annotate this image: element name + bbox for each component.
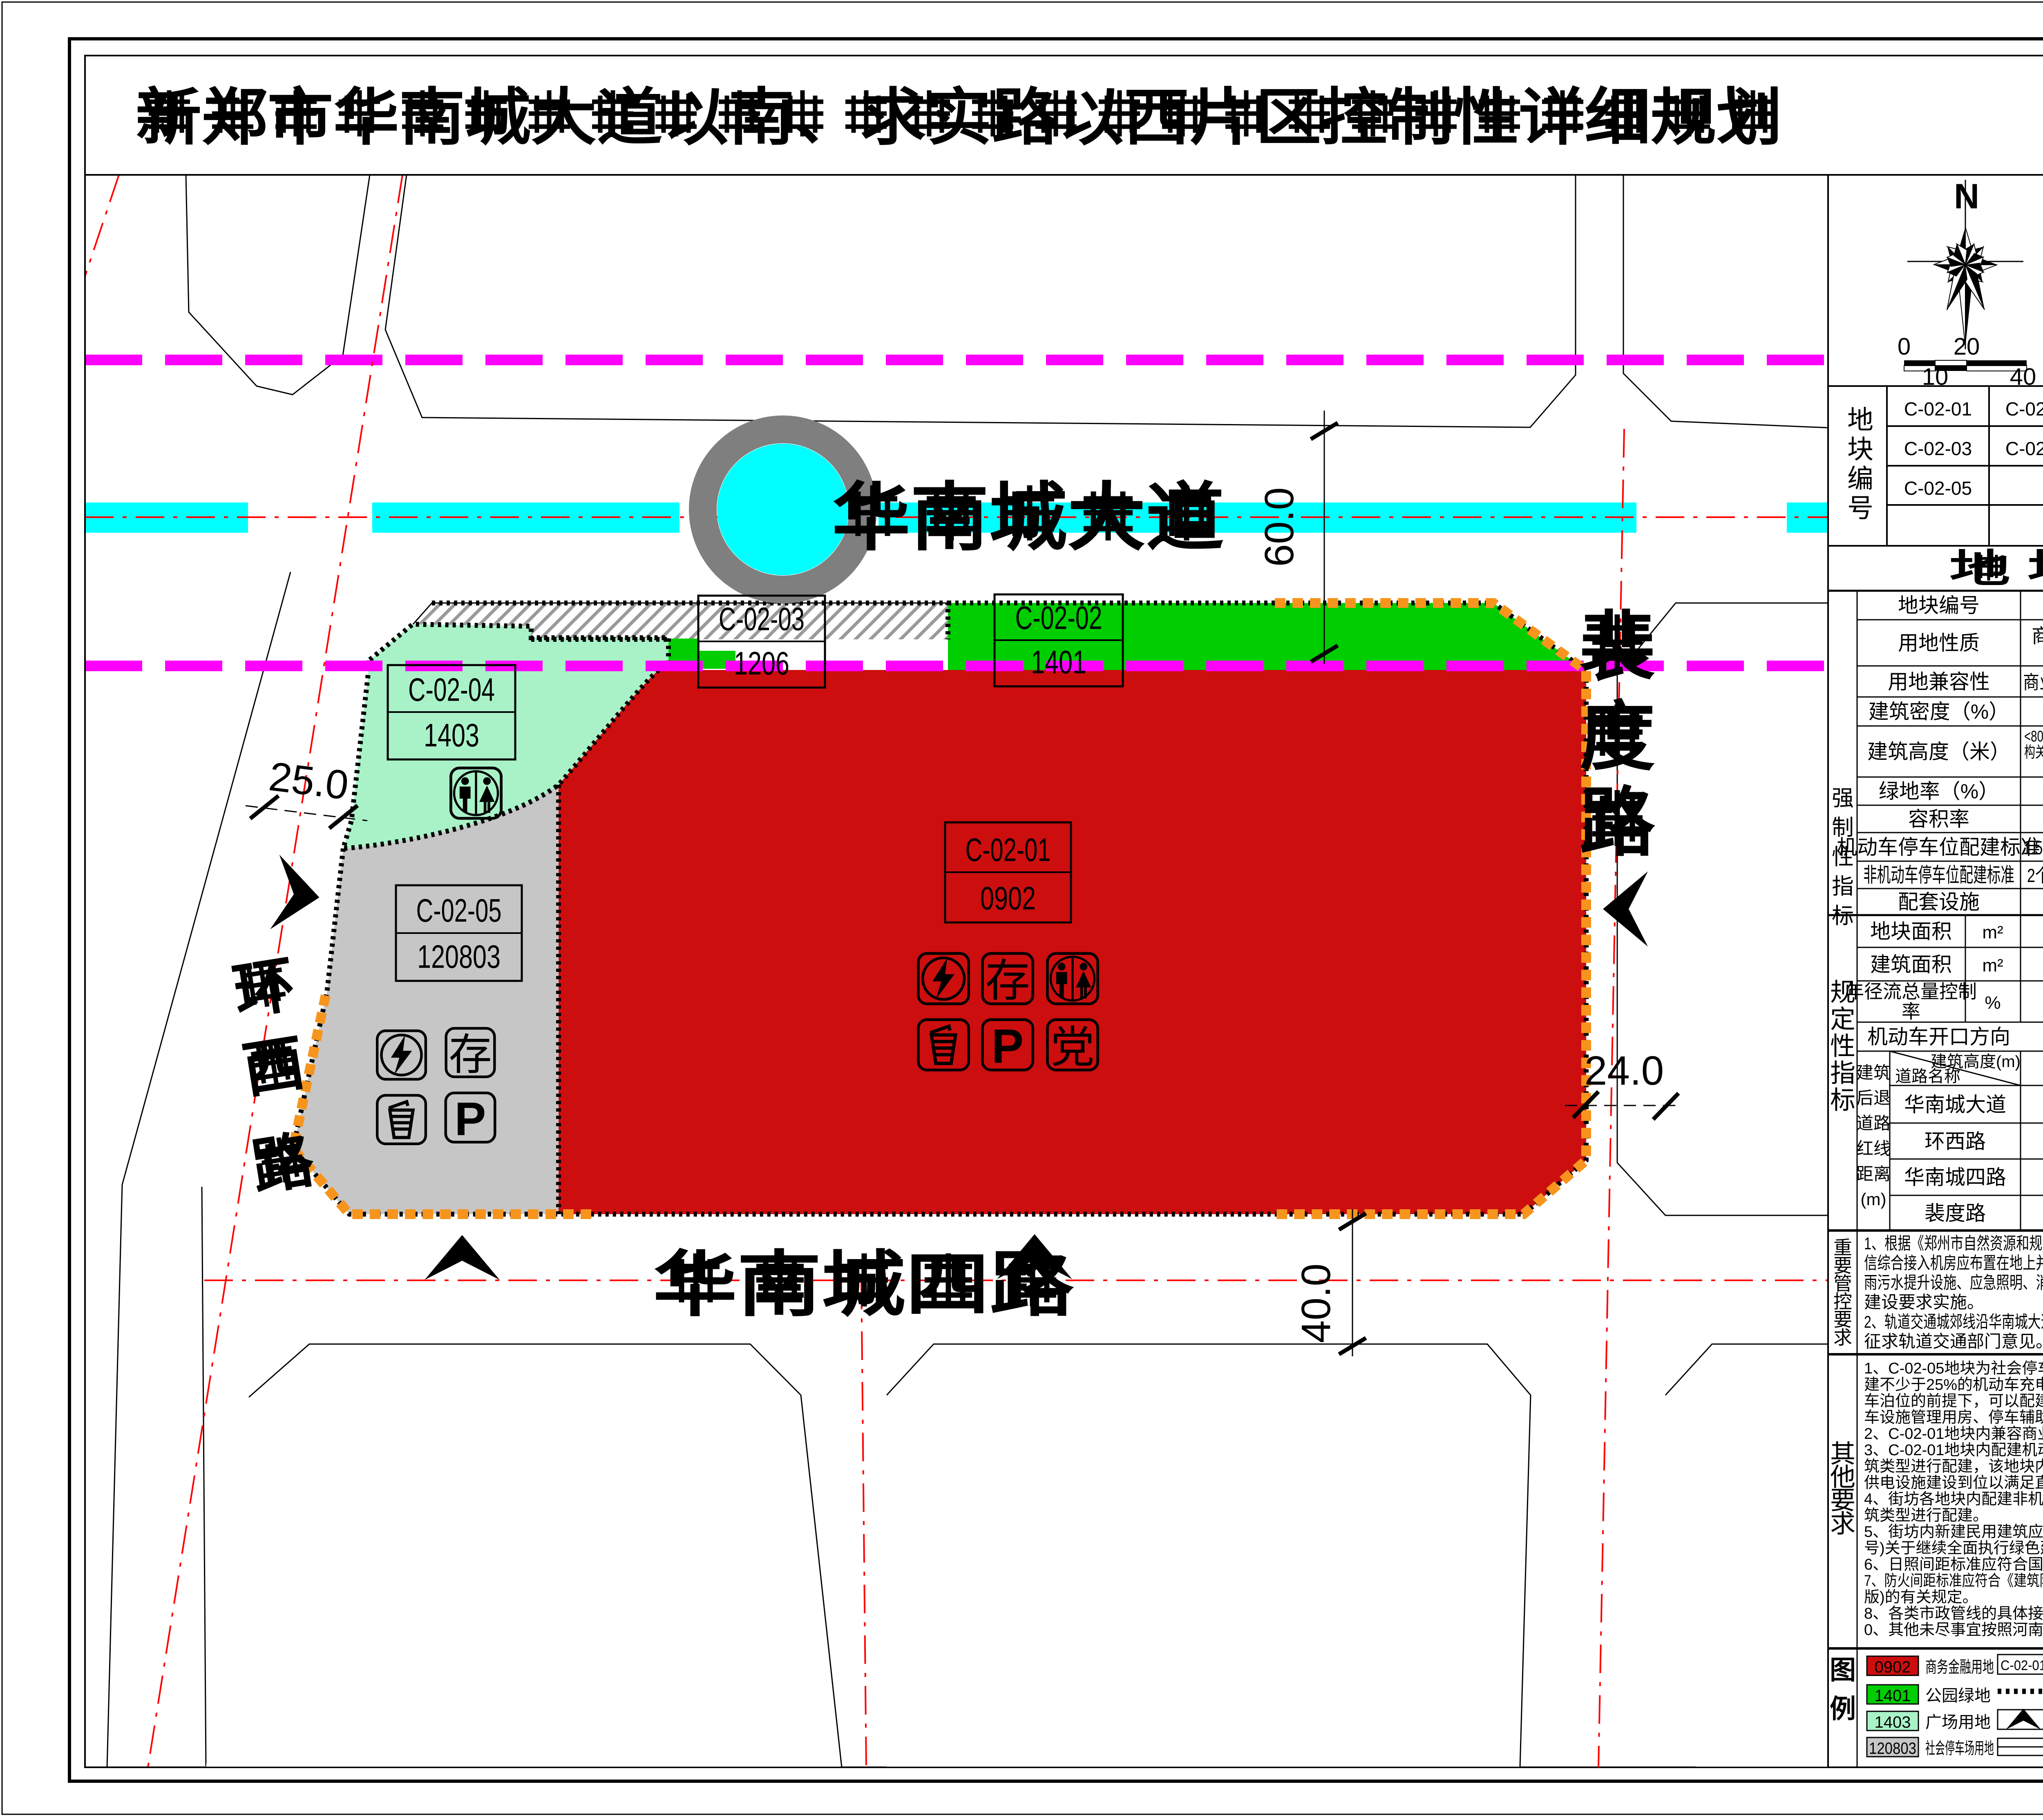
svg-text:车泊位的前提下，可以配建商业设施，其建筑面积不超过停车设施总: 车泊位的前提下，可以配建商业设施，其建筑面积不超过停车设施总建筑面积的20%，附… <box>1864 1393 2043 1410</box>
svg-text:m²: m² <box>1982 922 2003 942</box>
svg-text:配套设施: 配套设施 <box>1898 891 1980 913</box>
svg-text:车设施管理用房、停车辅助设施的建筑面积。: 车设施管理用房、停车辅助设施的建筑面积。 <box>1864 1409 2043 1426</box>
svg-text:120803: 120803 <box>1869 1740 1916 1757</box>
svg-text:建设要求实施。: 建设要求实施。 <box>1864 1293 1984 1312</box>
svg-text:1401: 1401 <box>1031 644 1086 680</box>
svg-text:C-02-04: C-02-04 <box>2005 438 2043 459</box>
svg-text:标: 标 <box>1832 904 1854 928</box>
svg-text:社会停车场用地: 社会停车场用地 <box>1925 1740 1994 1757</box>
svg-text:公园绿地: 公园绿地 <box>1925 1687 1991 1705</box>
svg-text:筑类型进行配建，该地块内配建停车位应100%建设充电设施或预: 筑类型进行配建，该地块内配建停车位应100%建设充电设施或预留安装条件，预留安装… <box>1864 1458 2043 1475</box>
svg-text:号)关于继续全面执行绿色建筑标准的相关要求。: 号)关于继续全面执行绿色建筑标准的相关要求。 <box>1864 1540 2043 1557</box>
svg-text:C-02-02: C-02-02 <box>1015 600 1102 636</box>
svg-text:8、各类市政管线的具体接口位置，应依据道路管线综合规划，在下: 8、各类市政管线的具体接口位置，应依据道路管线综合规划，在下步建设时结合规划地块… <box>1864 1605 2043 1622</box>
svg-text:0、其他未尽事宜按照河南省郑州市相关规范、政策要求及《郑州市: 0、其他未尽事宜按照河南省郑州市相关规范、政策要求及《郑州市城市规划管理技术规定… <box>1864 1621 2043 1639</box>
svg-text:0902: 0902 <box>980 880 1036 916</box>
svg-text:地块面积: 地块面积 <box>1870 920 1952 943</box>
svg-text:求: 求 <box>1833 1327 1852 1348</box>
svg-text:1、C-02-05地块为社会停车场用地，地块内建设机动车充电: 1、C-02-05地块为社会停车场用地，地块内建设机动车充电设施或预留安装条件的… <box>1864 1360 2043 1377</box>
svg-text:华南城四路: 华南城四路 <box>1904 1166 2006 1189</box>
svg-text:标: 标 <box>1830 1086 1855 1114</box>
svg-text:40.0: 40.0 <box>1293 1264 1339 1343</box>
svg-text:C-02-01: C-02-01 <box>1904 398 1972 420</box>
svg-text:C-02-02: C-02-02 <box>2005 398 2043 420</box>
svg-text:制: 制 <box>1832 815 1854 840</box>
svg-text:(m): (m) <box>1861 1190 1887 1209</box>
svg-text:C-02-03: C-02-03 <box>1904 438 1972 459</box>
svg-text:用地性质: 用地性质 <box>1898 632 1980 654</box>
svg-text:6、日照间距标准应符合国家相关规范及《郑州市城市规划管理技术: 6、日照间距标准应符合国家相关规范及《郑州市城市规划管理技术规定》(2024.1… <box>1864 1556 2043 1573</box>
svg-text:定: 定 <box>1830 1005 1855 1034</box>
svg-text:2、C-02-01地块内兼容商业设施建筑面积不得超过地上总建: 2、C-02-01地块内兼容商业设施建筑面积不得超过地上总建筑面积的40%。 <box>1864 1425 2043 1443</box>
svg-text:商务金融用地: 商务金融用地 <box>1925 1658 1994 1676</box>
svg-text:25.0: 25.0 <box>266 753 351 808</box>
svg-text:2个/100m²建筑面积: 2个/100m²建筑面积 <box>2027 865 2043 886</box>
svg-text:0: 0 <box>1898 333 1911 360</box>
svg-text:60.0: 60.0 <box>1256 487 1302 567</box>
svg-text:信综合接入机房应布置在地上并满足防洪防涝规划建设要求，热交换: 信综合接入机房应布置在地上并满足防洪防涝规划建设要求，热交换站、供水二次加压泵房… <box>1864 1253 2043 1273</box>
svg-text:指: 指 <box>1830 1059 1855 1088</box>
svg-text:裴度路: 裴度路 <box>1925 1202 1986 1225</box>
svg-text:商业用地（0901）: 商业用地（0901） <box>2023 672 2043 693</box>
svg-text:号: 号 <box>1847 494 1873 523</box>
svg-text:机动车开口方向: 机动车开口方向 <box>1867 1025 2010 1048</box>
svg-text:块: 块 <box>1847 435 1873 464</box>
svg-text:建不少于25%的机动车充电车位;依据《郑州市城市公共停车设施: 建不少于25%的机动车充电车位;依据《郑州市城市公共停车设施建设规定(试行)》，… <box>1864 1376 2043 1393</box>
svg-text:新郑市华南城大道以南、求实路以西片区控制性详细规划: 新郑市华南城大道以南、求实路以西片区控制性详细规划 <box>136 83 1782 152</box>
svg-text:广场用地: 广场用地 <box>1925 1713 1991 1731</box>
svg-text:120803: 120803 <box>417 938 501 975</box>
svg-text:m²: m² <box>1982 956 2003 976</box>
svg-text:机动车停车位配建标准: 机动车停车位配建标准 <box>1837 836 2041 859</box>
svg-text:征求轨道交通部门意见。: 征求轨道交通部门意见。 <box>1864 1332 2043 1351</box>
svg-text:1401: 1401 <box>1875 1687 1911 1705</box>
svg-text:5、街坊内新建民用建筑应符合《郑州市人民政府办公厅关于进一步: 5、街坊内新建民用建筑应符合《郑州市人民政府办公厅关于进一步推进绿色建筑发展的通… <box>1864 1523 2043 1541</box>
svg-text:C-02-01: C-02-01 <box>2001 1658 2043 1673</box>
svg-text:建筑密度（%）: 建筑密度（%） <box>1869 700 2009 723</box>
svg-text:道路名称: 道路名称 <box>1895 1067 1960 1085</box>
svg-text:C-02-05: C-02-05 <box>416 892 502 929</box>
svg-text:20: 20 <box>1954 333 1980 360</box>
svg-text:建筑: 建筑 <box>1856 1063 1891 1082</box>
svg-text:24.0: 24.0 <box>1585 1048 1664 1094</box>
svg-text:环西路: 环西路 <box>1925 1130 1986 1153</box>
svg-text:C-02-05: C-02-05 <box>1904 478 1972 499</box>
svg-text:版)的有关规定。: 版)的有关规定。 <box>1864 1589 1978 1606</box>
svg-text:N: N <box>1954 177 1979 216</box>
svg-text:雨污水提升设施、应急照明、消控中心、地下空间出入口、通风口、: 雨污水提升设施、应急照明、消控中心、地下空间出入口、通风口、电梯井、楼梯间等设施… <box>1864 1273 2043 1292</box>
svg-text:绿地率（%）: 绿地率（%） <box>1879 780 1999 803</box>
svg-text:供电设施建设到位以满足直接装表接电需要，应同步配建不少于30: 供电设施建设到位以满足直接装表接电需要，应同步配建不少于30%的充电车位。 <box>1864 1474 2043 1492</box>
svg-text:2、轨道交通城郊线沿华南城大道敷设，两侧各控制50米的轨道交: 2、轨道交通城郊线沿华南城大道敷设，两侧各控制50米的轨道交通控制线，轨道交通控… <box>1864 1312 2043 1331</box>
svg-text:建筑面积: 建筑面积 <box>1870 953 1952 976</box>
svg-text:1206: 1206 <box>734 645 789 681</box>
svg-text:华南城大道: 华南城大道 <box>1904 1093 2006 1116</box>
svg-text:1、根据《郑州市自然资源和规划局关于加强防洪防涝规划管理工作: 1、根据《郑州市自然资源和规划局关于加强防洪防涝规划管理工作的通知(试行)》的要… <box>1864 1234 2043 1253</box>
svg-text:C-02-01: C-02-01 <box>966 832 1051 868</box>
svg-text:<80，且须符合机场管理机: <80，且须符合机场管理机 <box>2024 728 2043 745</box>
svg-text:构关于项目核准净空高度的: 构关于项目核准净空高度的 <box>2024 744 2043 761</box>
svg-text:规: 规 <box>1830 978 1855 1007</box>
svg-text:图: 图 <box>1830 1655 1856 1685</box>
svg-text:商务金融用地: 商务金融用地 <box>2032 625 2043 647</box>
svg-text:后退: 后退 <box>1856 1088 1891 1108</box>
svg-text:性: 性 <box>1830 1032 1855 1061</box>
svg-text:%: % <box>1985 993 2001 1013</box>
svg-text:华南城大道: 华南城大道 <box>832 476 1224 559</box>
svg-text:求: 求 <box>1830 1510 1855 1538</box>
svg-text:0902: 0902 <box>1875 1658 1911 1676</box>
svg-text:年径流总量控制: 年径流总量控制 <box>1845 981 1977 1002</box>
svg-text:1403: 1403 <box>1875 1713 1911 1731</box>
svg-text:道路: 道路 <box>1856 1114 1891 1133</box>
svg-text:3、C-02-01地块内配建机动车停车位应符合《郑州市城市规: 3、C-02-01地块内配建机动车停车位应符合《郑州市城市规划管理技术规定》(2… <box>1864 1442 2043 1459</box>
svg-text:地 块 规 划 控 制: 地 块 规 划 控 制 <box>1949 547 2043 591</box>
svg-text:筑类型进行配建。: 筑类型进行配建。 <box>1864 1507 1988 1524</box>
svg-text:例: 例 <box>1830 1694 1856 1724</box>
svg-text:率: 率 <box>1902 1001 1920 1022</box>
svg-text:华南城四路: 华南城四路 <box>653 1245 1074 1325</box>
svg-text:距离: 距离 <box>1856 1164 1891 1184</box>
svg-text:C-02-04: C-02-04 <box>408 672 495 708</box>
svg-text:1403: 1403 <box>424 717 479 753</box>
svg-text:红线: 红线 <box>1856 1139 1891 1158</box>
svg-text:地: 地 <box>1847 405 1873 435</box>
svg-text:建筑高度（米）: 建筑高度（米） <box>1867 740 2010 763</box>
svg-text:性: 性 <box>1832 845 1854 869</box>
svg-text:C-02-03: C-02-03 <box>719 601 805 637</box>
svg-text:强: 强 <box>1832 786 1854 811</box>
svg-text:编: 编 <box>1847 464 1873 494</box>
svg-text:用地兼容性: 用地兼容性 <box>1888 670 1990 693</box>
svg-text:指: 指 <box>1832 874 1854 899</box>
svg-text:非机动车停车位配建标准: 非机动车停车位配建标准 <box>1863 864 2014 887</box>
svg-text:地块编号: 地块编号 <box>1898 594 1980 617</box>
svg-text:7、防火间距标准应符合《建筑防火通用规范(GB55037-2: 7、防火间距标准应符合《建筑防火通用规范(GB55037-2022)》和《建筑设… <box>1864 1572 2043 1590</box>
svg-text:1.5个/100m²建筑面积: 1.5个/100m²建筑面积 <box>2023 837 2043 858</box>
svg-text:容积率: 容积率 <box>1908 808 1969 831</box>
svg-text:4、街坊各地块内配建非机动车停车位应符合(郑州市城市规划管理: 4、街坊各地块内配建非机动车停车位应符合(郑州市城市规划管理技术规定》(2024… <box>1864 1491 2043 1508</box>
